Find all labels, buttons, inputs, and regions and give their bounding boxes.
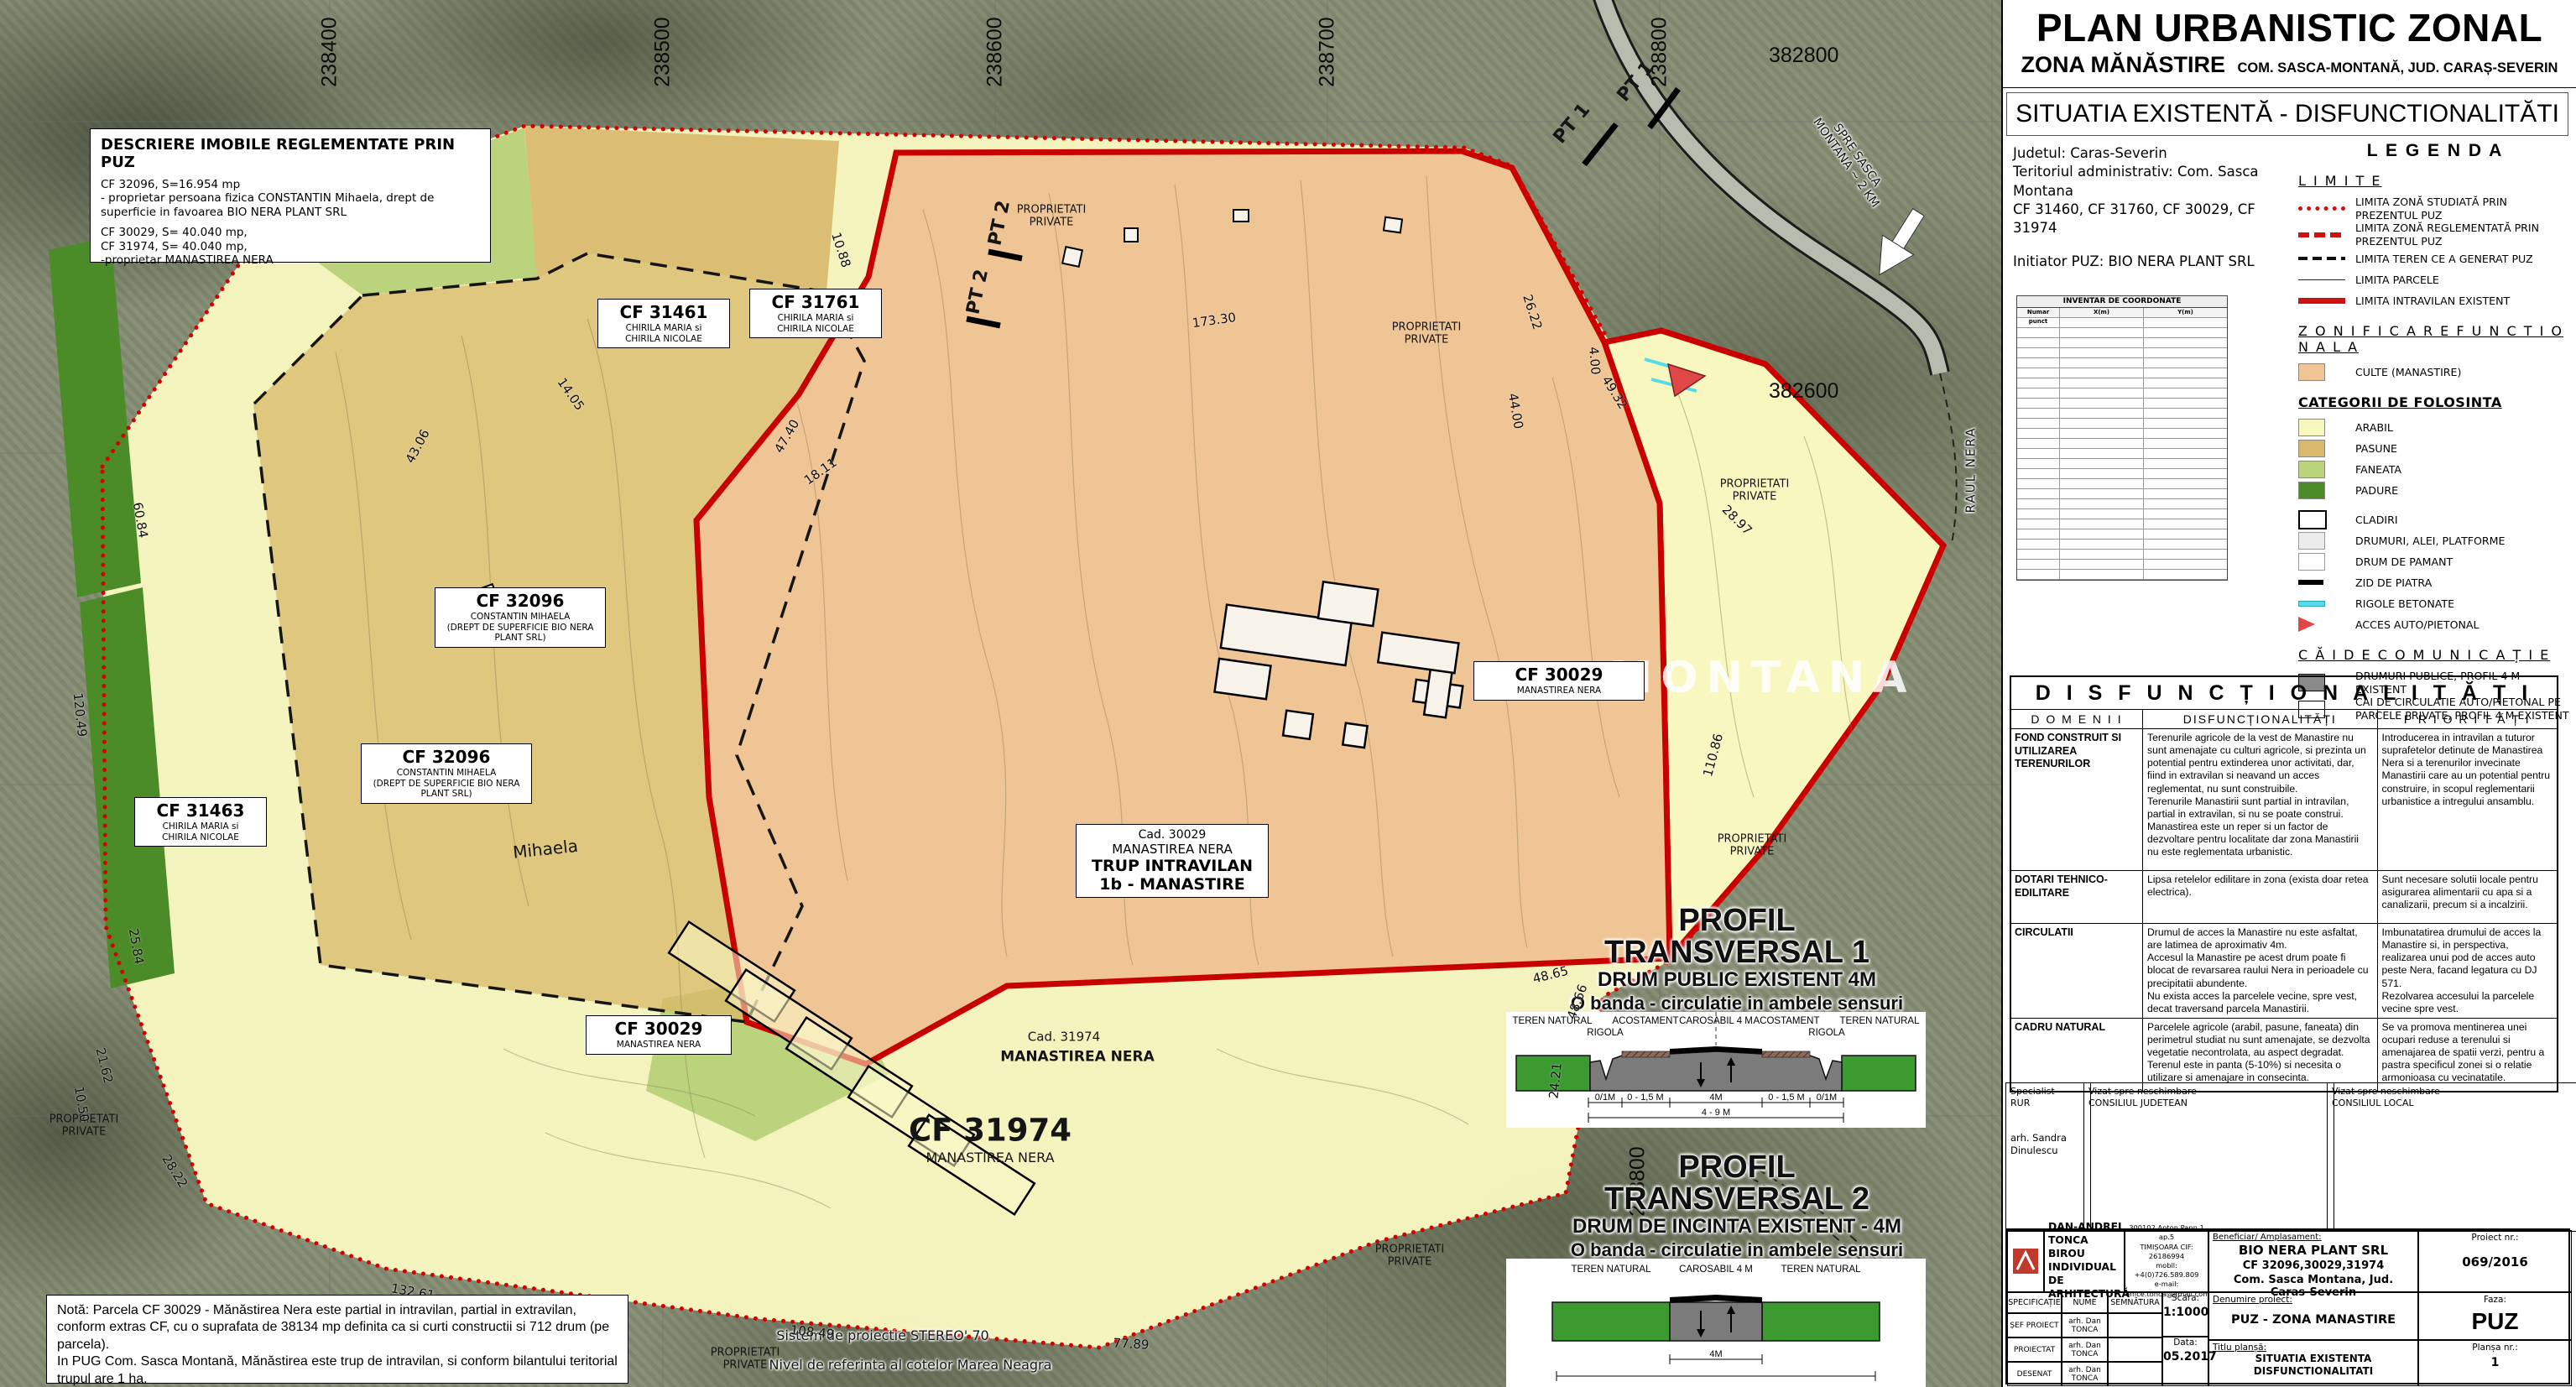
sheet-subtitle-row: ZONA MĂNĂSTIRE COM. SASCA-MONTANĂ, JUD. … [2003, 52, 2576, 78]
vizat-label: Vizat spre neschimbare [2088, 1086, 2329, 1098]
legend-item-label: PASUNE [2355, 442, 2397, 456]
legend-item-label: ZID DE PIATRA [2355, 576, 2432, 590]
coord-table-header: Numar punct X(m) Y(m) [2017, 308, 2227, 318]
coord-row [2017, 459, 2227, 469]
legend-item: DRUMURI, ALEI, PLATFORME [2298, 530, 2572, 551]
title-panel: PLAN URBANISTIC ZONAL ZONA MĂNĂSTIRE COM… [2001, 0, 2576, 1387]
parcel-id: CF 31761 [753, 293, 879, 311]
coord-cell [2144, 550, 2227, 559]
svg-text:0 - 1,5 M: 0 - 1,5 M [1768, 1092, 1804, 1103]
map-text: Cad. 31974 [1028, 1030, 1100, 1045]
spec-cell: arh. Dan TONCA [2062, 1362, 2108, 1386]
svg-text:ACOSTAMENT: ACOSTAMENT [1753, 1016, 1819, 1026]
svg-text:ACOSTAMENT: ACOSTAMENT [1612, 1016, 1678, 1026]
descriere-lines: CF 32096, S=16.954 mp- proprietar persoa… [101, 178, 480, 268]
disf-text: Terenurile agricole de la vest de Manast… [2143, 729, 2378, 870]
coord-cell [2017, 439, 2060, 448]
coord-cell [2060, 449, 2144, 458]
coord-cell [2144, 378, 2227, 388]
descriere-title: DESCRIERE IMOBILE REGLEMENTATE PRIN PUZ [101, 136, 480, 171]
p2-line3: DRUM DE INCINTA EXISTENT - 4M [1569, 1215, 1905, 1239]
legend-item: ZID DE PIATRA [2298, 572, 2572, 593]
spec-row: DESENATarh. Dan TONCA [2007, 1362, 2162, 1386]
parcel-id: CF 30029 [589, 1019, 728, 1038]
parcel-owner: CHIRILA MARIA si CHIRILA NICOLAE [753, 313, 879, 334]
svg-text:TEREN NATURAL: TEREN NATURAL [1840, 1016, 1921, 1026]
legend-item: LIMITA PARCELE [2298, 269, 2572, 290]
legend-item: LIMITA INTRAVILAN EXISTENT [2298, 290, 2572, 311]
scara-cell: Scara: 1:1000 [2162, 1292, 2208, 1337]
coord-cell [2144, 358, 2227, 368]
legend-item: CULTE (MANASTIRE) [2298, 362, 2572, 383]
map-text: PROPRIETATIPRIVATE [1392, 321, 1462, 346]
coord-cell [2060, 570, 2144, 579]
legend-item-label: LIMITA ZONĂ STUDIATĂ PRIN PREZENTUL PUZ [2355, 196, 2572, 222]
grid-coordinate-label: 382800 [1769, 44, 1838, 68]
coord-cell [2144, 429, 2227, 438]
map-text: RAUL NERA [1964, 427, 1979, 514]
coord-cell [2060, 489, 2144, 498]
coord-row [2017, 519, 2227, 529]
trup-line: Cad. 30029 [1079, 828, 1265, 842]
legend-constructii-items: CLADIRIDRUMURI, ALEI, PLATFORMEDRUM DE P… [2298, 509, 2572, 635]
coord-cell [2017, 358, 2060, 368]
info-judet: Judetul: Caras-Severin [2013, 144, 2290, 163]
coord-cell [2060, 399, 2144, 408]
map-canvas[interactable]: 2384002385002386002387002388003828003826… [0, 0, 2001, 1387]
info-initiator: Initiator PUZ: BIO NERA PLANT SRL [2013, 253, 2290, 271]
tri-acces-icon [2298, 617, 2347, 632]
descriere-line: CF 32096, S=16.954 mp [101, 178, 480, 191]
rect-faneata-icon [2298, 461, 2347, 478]
grid-coordinate-label: 238600 [983, 17, 1008, 86]
coord-cell [2060, 509, 2144, 519]
coord-cell [2144, 439, 2227, 448]
legend-item: DRUM DE PAMANT [2298, 551, 2572, 572]
coord-cell [2060, 540, 2144, 549]
legend-item-label: LIMITA ZONĂ REGLEMENTATĂ PRIN PREZENTUL … [2355, 222, 2572, 248]
coord-cell [2017, 560, 2060, 569]
coord-cell [2017, 429, 2060, 438]
disf-text: Drumul de acces la Manastire nu este asf… [2143, 924, 2378, 1018]
proiect-nr-cell: Proiect nr.: 069/2016 [2418, 1230, 2572, 1292]
rect-pasune-icon [2298, 440, 2347, 457]
spec-cell: ȘEF PROIECT [2007, 1313, 2062, 1337]
specialist-name: arh. Sandra Dinulescu [2010, 1132, 2086, 1157]
coord-row [2017, 509, 2227, 519]
legend-item: ARABIL [2298, 417, 2572, 438]
dimension-label: 77.89 [1113, 1336, 1150, 1352]
legend-item-label: ARABIL [2355, 421, 2393, 435]
legend: L E G E N D A L I M I T E LIMITA ZONĂ ST… [2298, 141, 2572, 722]
coord-cell [2017, 469, 2060, 478]
coord-row [2017, 378, 2227, 388]
disf-rows: FOND CONSTRUIT SI UTILIZAREA TERENURILOR… [2011, 729, 2557, 1091]
coord-cell [2144, 388, 2227, 398]
line-dash-black-swatch [2298, 257, 2345, 260]
specialist-label-2: RUR [2010, 1098, 2086, 1109]
coord-cell [2060, 459, 2144, 468]
coord-table-rows [2017, 318, 2227, 580]
descriere-line: CF 30029, S= 40.040 mp, [101, 226, 480, 239]
coord-cell [2060, 429, 2144, 438]
legend-cai-title: C Ă I D E C O M U N I C A Ț I E [2298, 647, 2572, 663]
denumire-cell: Denumire proiect: PUZ - ZONA MANASTIRE [2208, 1292, 2418, 1340]
coord-cell [2060, 519, 2144, 529]
svg-text:TEREN NATURAL: TEREN NATURAL [1781, 1264, 1862, 1275]
trup-line: MANASTIREA NERA [1079, 842, 1265, 857]
descriere-imobile-box: DESCRIERE IMOBILE REGLEMENTATE PRIN PUZ … [90, 128, 491, 263]
rect-cladiri-icon [2298, 510, 2347, 529]
legend-limite-items: LIMITA ZONĂ STUDIATĂ PRIN PREZENTUL PUZL… [2298, 196, 2572, 311]
bar-rigole-swatch [2298, 601, 2325, 607]
coord-cell [2017, 479, 2060, 488]
parcel-id: CF 30029 [1477, 665, 1641, 684]
disf-row: FOND CONSTRUIT SI UTILIZAREA TERENURILOR… [2011, 729, 2557, 871]
descriere-line: -proprietar MANASTIREA NERA [101, 253, 480, 267]
title-block: DAN-ANDREI TONCA BIROU INDIVIDUAL DE ARH… [2005, 1228, 2570, 1384]
legend-item-label: LIMITA PARCELE [2355, 274, 2439, 287]
specialist-box: Specialist RUR arh. Sandra Dinulescu [2005, 1082, 2091, 1232]
disf-domeniu: CIRCULATII [2011, 924, 2143, 1018]
specialist-label-1: Specialist [2010, 1086, 2086, 1098]
coord-cell [2144, 409, 2227, 418]
p1-line4: O banda - circulatie in ambele sensuri [1569, 993, 1905, 1014]
coord-cell [2144, 499, 2227, 508]
coord-cell [2144, 479, 2227, 488]
nota-lines: Notă: Parcela CF 30029 - Mănăstirea Nera… [57, 1302, 618, 1387]
coord-cell [2144, 328, 2227, 337]
legend-item-label: DRUMURI, ALEI, PLATFORME [2355, 534, 2506, 548]
line-dash-red-swatch [2298, 232, 2345, 237]
sheet-title: PLAN URBANISTIC ZONAL [2003, 5, 2576, 50]
line-thin-swatch [2298, 279, 2345, 280]
coord-cell [2060, 378, 2144, 388]
parcel-owner: MANASTIREA NERA [589, 1040, 728, 1051]
zone-location: COM. SASCA-MONTANĂ, JUD. CARAȘ-SEVERIN [2237, 60, 2558, 76]
coord-cell [2144, 519, 2227, 529]
plansa-nr-cell: Planșa nr.: 1 [2418, 1340, 2572, 1386]
coord-row [2017, 529, 2227, 540]
coord-cell [2017, 328, 2060, 337]
dimension-label: 4.00 [1586, 347, 1603, 376]
logo-icon [2012, 1248, 2039, 1275]
coord-row [2017, 399, 2227, 409]
map-text: MONTANA [1609, 654, 1916, 702]
coord-cell [2144, 419, 2227, 428]
grid-coordinate-label: 238700 [1316, 17, 1340, 86]
coord-table-title: INVENTAR DE COORDONATE [2017, 296, 2227, 308]
coord-cell [2144, 318, 2227, 327]
divider [2003, 87, 2576, 88]
coord-cell [2060, 368, 2144, 378]
map-text: PROPRIETATIPRIVATE [1720, 478, 1790, 503]
coord-cell [2144, 399, 2227, 408]
parcel-owner: CONSTANTIN MIHAELA (DREPT DE SUPERFICIE … [364, 768, 529, 800]
coord-cell [2144, 509, 2227, 519]
bar-zid-icon [2298, 580, 2347, 585]
disf-prioritate: Sunt necesare solutii locale pentru asig… [2378, 871, 2557, 923]
disf-row: CADRU NATURALParcelele agricole (arabil,… [2011, 1019, 2557, 1091]
coord-cell [2017, 509, 2060, 519]
coord-cell [2017, 519, 2060, 529]
map-text: MANASTIREA NERA [1000, 1049, 1155, 1065]
grid-coordinate-label: 238500 [651, 17, 675, 86]
coord-cell [2060, 439, 2144, 448]
svg-text:0/1M: 0/1M [1595, 1092, 1615, 1103]
coord-row [2017, 489, 2227, 499]
spec-cell [2108, 1313, 2162, 1337]
spec-cell: PROIECTAT [2007, 1337, 2062, 1362]
legend-item: LIMITA ZONĂ STUDIATĂ PRIN PREZENTUL PUZ [2298, 196, 2572, 222]
trup-line: 1b - MANASTIRE [1079, 875, 1265, 894]
coord-cell [2060, 328, 2144, 337]
svg-text:CAROSABIL 4 M: CAROSABIL 4 M [1679, 1264, 1753, 1275]
coord-row [2017, 388, 2227, 399]
bar-zid-swatch [2298, 580, 2323, 585]
admin-info: Judetul: Caras-Severin Teritoriul admini… [2013, 144, 2290, 272]
parcel-label-box: CF 31463CHIRILA MARIA si CHIRILA NICOLAE [134, 797, 267, 847]
coord-cell [2017, 540, 2060, 549]
legend-zonificare-title: Z O N I F I C A R E F U N C T I O N A L … [2298, 323, 2572, 355]
coord-cell [2017, 368, 2060, 378]
coord-cell [2060, 419, 2144, 428]
rect-culte-icon [2298, 363, 2347, 381]
coord-row [2017, 560, 2227, 570]
coord-row [2017, 368, 2227, 378]
coord-row [2017, 479, 2227, 489]
coord-cell [2017, 419, 2060, 428]
parcel-owner: CONSTANTIN MIHAELA (DREPT DE SUPERFICIE … [438, 612, 602, 644]
parcel-label-box: CF 32096CONSTANTIN MIHAELA (DREPT DE SUP… [435, 587, 606, 648]
legend-item-label: DRUM DE PAMANT [2355, 555, 2453, 569]
info-teritoriu: Teritoriul administrativ: Com. Sasca Mon… [2013, 163, 2290, 201]
parcel-label-box: CF 31761CHIRILA MARIA si CHIRILA NICOLAE [749, 289, 882, 338]
p2-line4: O banda - circulatie in ambele sensuri [1569, 1239, 1905, 1261]
p1-line3: DRUM PUBLIC EXISTENT 4M [1569, 968, 1905, 993]
rect-arabil-swatch [2298, 419, 2325, 436]
titlu-plansa-cell: Titlu planșă: SITUATIA EXISTENTA DISFUNC… [2208, 1340, 2418, 1386]
line-dot-red-icon [2298, 206, 2347, 211]
data-cell: Data: 05.2017 [2162, 1337, 2208, 1386]
rect-faneata-swatch [2298, 461, 2325, 478]
coord-row [2017, 499, 2227, 509]
coord-row [2017, 439, 2227, 449]
firm-line2: BIROU INDIVIDUAL [2048, 1248, 2124, 1275]
legend-item-label: PADURE [2355, 484, 2398, 498]
coord-cell [2060, 479, 2144, 488]
profil-1-cross-section: TEREN NATURAL RIGOLA ACOSTAMENT CAROSABI… [1506, 1012, 1926, 1128]
coord-cell [2017, 388, 2060, 398]
coord-cell [2060, 550, 2144, 559]
svg-text:4M: 4M [1709, 1092, 1722, 1103]
legend-item: PASUNE [2298, 438, 2572, 459]
road-direction-arrow [1864, 202, 1934, 284]
coord-cell [2144, 570, 2227, 579]
beneficiar-cell: Beneficiar/ Amplasament: BIO NERA PLANT … [2208, 1230, 2418, 1292]
grid-coordinate-label: 238400 [318, 17, 342, 86]
vizat-judetean: CONSILIUL JUDETEAN [2088, 1098, 2329, 1109]
parcel-id: CF 31461 [601, 303, 727, 321]
coord-row [2017, 550, 2227, 560]
coord-cell [2017, 449, 2060, 458]
coord-cell [2060, 388, 2144, 398]
firm-line1: DAN-ANDREI TONCA [2048, 1221, 2124, 1248]
svg-text:RIGOLA: RIGOLA [1808, 1028, 1845, 1038]
disf-domeniu: DOTARI TEHNICO-EDILITARE [2011, 871, 2143, 923]
vizat-local: CONSILIUL LOCAL [2332, 1098, 2575, 1109]
spec-cell: DESENAT [2007, 1362, 2062, 1386]
legend-item-label: LIMITA TEREN CE A GENERAT PUZ [2355, 253, 2533, 266]
parcel-owner: CHIRILA MARIA si CHIRILA NICOLAE [138, 821, 263, 842]
coord-cell [2060, 318, 2144, 327]
spec-cell: SEMNĂTURA [2108, 1292, 2162, 1313]
p1-line1: PROFIL [1569, 905, 1905, 936]
coord-cell [2060, 358, 2144, 368]
legend-item: LIMITA ZONĂ REGLEMENTATĂ PRIN PREZENTUL … [2298, 222, 2572, 248]
coord-cell [2017, 529, 2060, 539]
disf-title: D I S F U N C Ț I O N A L I T Ă Ț I [2011, 677, 2557, 710]
coord-cell [2017, 409, 2060, 418]
coord-cell [2017, 499, 2060, 508]
svg-text:4 - 9 M: 4 - 9 M [1702, 1108, 1730, 1118]
legend-item: PADURE [2298, 480, 2572, 501]
parcel-owner: MANASTIREA NERA [1477, 686, 1641, 696]
parcel-owner: CHIRILA MARIA si CHIRILA NICOLAE [601, 323, 727, 344]
map-text: PROPRIETATIPRIVATE [1017, 204, 1087, 228]
coord-row [2017, 449, 2227, 459]
coord-cell [2060, 348, 2144, 357]
coord-cell [2060, 529, 2144, 539]
map-text: MANASTIREA NERA [926, 1150, 1054, 1165]
coord-cell [2017, 489, 2060, 498]
coord-cell [2144, 459, 2227, 468]
architect-logo [2007, 1230, 2044, 1292]
spec-cell: arh. Dan TONCA [2062, 1337, 2108, 1362]
p2-line1: PROFIL [1569, 1151, 1905, 1183]
parcel-label-box: CF 30029MANASTIREA NERA [1473, 661, 1645, 701]
tri-acces-swatch [2298, 617, 2315, 632]
rect-arabil-icon [2298, 419, 2347, 436]
grid-coordinate-label: 382600 [1769, 379, 1838, 404]
parcel-id: CF 32096 [438, 592, 602, 610]
spec-cell: arh. Dan TONCA [2062, 1313, 2108, 1337]
spec-cell: SPECIFICAȚIE [2007, 1292, 2062, 1313]
p2-line2: TRANSVERSAL 2 [1569, 1183, 1905, 1215]
line-thick-red-swatch [2298, 298, 2345, 304]
disfunctionalitati-table: D I S F U N C Ț I O N A L I T Ă Ț I D O … [2010, 675, 2558, 1092]
coord-cell [2017, 399, 2060, 408]
parcel-id: CF 31463 [138, 801, 263, 820]
coord-cell [2144, 348, 2227, 357]
rect-padure-icon [2298, 482, 2347, 499]
legend-title: L E G E N D A [2298, 141, 2572, 161]
legend-item: FANEATA [2298, 459, 2572, 480]
spec-cell: NUME [2062, 1292, 2108, 1313]
disf-text: Parcelele agricole (arabil, pasune, fane… [2143, 1019, 2378, 1091]
coord-cell [2017, 318, 2060, 327]
svg-text:CAROSABIL 4 M: CAROSABIL 4 M [1679, 1016, 1753, 1026]
plansa-subtitle: SITUATIA EXISTENTĂ - DISFUNCTIONALITĂTI [2006, 92, 2568, 136]
rect-pamant-swatch [2298, 553, 2325, 571]
coord-cell [2144, 368, 2227, 378]
svg-text:RIGOLA: RIGOLA [1587, 1028, 1624, 1038]
coord-cell [2144, 469, 2227, 478]
coord-cell [2017, 459, 2060, 468]
architect-firm: DAN-ANDREI TONCA BIROU INDIVIDUAL DE ARH… [2044, 1230, 2125, 1292]
coord-cell [2060, 338, 2144, 347]
parcel-label-box: CF 30029MANASTIREA NERA [586, 1015, 732, 1055]
coord-row [2017, 358, 2227, 368]
map-text: PROPRIETATIPRIVATE [1718, 833, 1787, 858]
legend-zonificare-items: CULTE (MANASTIRE) [2298, 362, 2572, 383]
legend-item: ACCES AUTO/PIETONAL [2298, 614, 2572, 635]
coord-cell [2017, 338, 2060, 347]
coord-cell [2017, 348, 2060, 357]
map-text: Nivel de referinta al cotelor Marea Neag… [769, 1358, 1052, 1373]
coord-cell [2060, 499, 2144, 508]
coord-cell [2144, 529, 2227, 539]
parcel-label-box: CF 32096CONSTANTIN MIHAELA (DREPT DE SUP… [361, 743, 532, 804]
spec-cell [2108, 1337, 2162, 1362]
map-text: PROPRIETATIPRIVATE [1375, 1244, 1445, 1268]
legend-item: CLADIRI [2298, 509, 2572, 530]
spec-row: ȘEF PROIECTarh. Dan TONCA [2007, 1313, 2162, 1337]
coord-row [2017, 409, 2227, 419]
profil-transversal-1-title: PROFIL TRANSVERSAL 1 DRUM PUBLIC EXISTEN… [1569, 905, 1905, 1014]
nota-line: In PUG Com. Sasca Montană, Mănăstirea es… [57, 1353, 618, 1387]
svg-text:TEREN NATURAL: TEREN NATURAL [1513, 1016, 1593, 1026]
disf-prioritate: Se va promova mentinerea unei ocupari re… [2378, 1019, 2557, 1091]
trup-line: TRUP INTRAVILAN [1079, 857, 1265, 875]
coord-cell [2060, 469, 2144, 478]
legend-item-label: FANEATA [2355, 463, 2401, 477]
rect-drumuri-icon [2298, 532, 2347, 550]
coord-row [2017, 469, 2227, 479]
coord-cell [2144, 489, 2227, 498]
spec-row: SPECIFICAȚIENUMESEMNĂTURA [2007, 1292, 2162, 1313]
disf-prioritate: Introducerea in intravilan a tuturor sup… [2378, 729, 2557, 870]
legend-item-label: CULTE (MANASTIRE) [2355, 366, 2461, 379]
descriere-line: - proprietar persoana fizica CONSTANTIN … [101, 191, 480, 219]
spec-row: PROIECTATarh. Dan TONCA [2007, 1337, 2162, 1362]
nota-line: Notă: Parcela CF 30029 - Mănăstirea Nera… [57, 1302, 618, 1353]
legend-item-label: CLADIRI [2355, 514, 2398, 527]
rect-cladiri-swatch [2298, 510, 2327, 529]
rect-padure-swatch [2298, 482, 2325, 499]
legend-item-label: ACCES AUTO/PIETONAL [2355, 618, 2480, 632]
vizat-judetean-box: Vizat spre neschimbare CONSILIUL JUDETEA… [2083, 1082, 2334, 1232]
trup-intravilan-box: Cad. 30029MANASTIREA NERATRUP INTRAVILAN… [1076, 824, 1269, 898]
spec-cell [2108, 1362, 2162, 1386]
line-dash-red-icon [2298, 232, 2347, 237]
coord-row [2017, 318, 2227, 328]
rect-drumuri-swatch [2298, 532, 2325, 550]
p1-line2: TRANSVERSAL 1 [1569, 936, 1905, 968]
puz-sheet: 2384002385002386002387002388003828003826… [0, 0, 2576, 1387]
coord-row [2017, 348, 2227, 358]
coord-cell [2144, 540, 2227, 549]
legend-item: LIMITA TEREN CE A GENERAT PUZ [2298, 248, 2572, 269]
disf-row: CIRCULATIIDrumul de acces la Manastire n… [2011, 924, 2557, 1019]
legend-item: RIGOLE BETONATE [2298, 593, 2572, 614]
legend-folosinta-title: CATEGORII DE FOLOSINTA [2298, 394, 2572, 410]
coord-cell [2017, 550, 2060, 559]
legend-limite-title: L I M I T E [2298, 173, 2572, 189]
profil-2-cross-section: TEREN NATURAL CAROSABIL 4 M TEREN NATURA… [1506, 1259, 1926, 1387]
nota-box: Notă: Parcela CF 30029 - Mănăstirea Nera… [46, 1295, 628, 1384]
vizat-local-box: Vizat spre neschimbare CONSILIUL LOCAL [2327, 1082, 2576, 1232]
